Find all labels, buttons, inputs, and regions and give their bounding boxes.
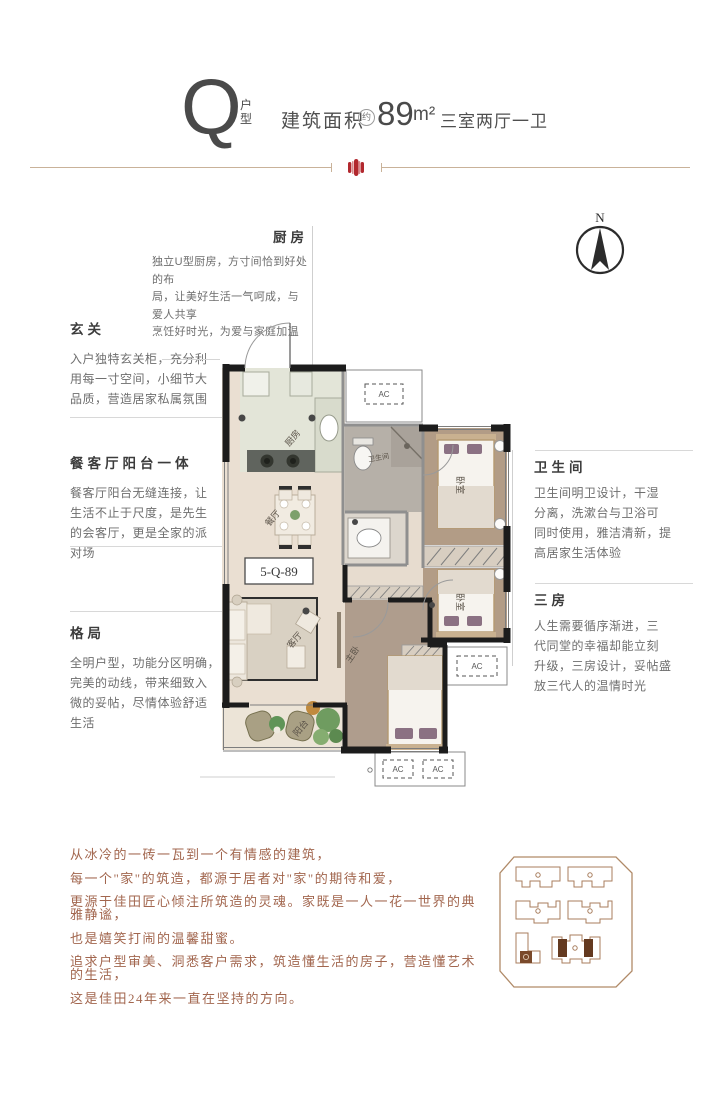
manifesto-line: 也是嬉笑打闹的温馨甜蜜。 — [70, 932, 490, 945]
divider-ornament-icon — [345, 157, 367, 178]
manifesto-line: 每一个"家"的筑造，都源于居者对"家"的期待和爱， — [70, 872, 490, 885]
divider-three-rooms — [535, 583, 693, 584]
unit-code-text: 5-Q-89 — [260, 564, 298, 579]
divider-tick-right — [381, 163, 382, 172]
annotation-three-rooms-text: 人生需要循序渐进，三 代同堂的幸福却能立刻 升级，三房设计，妥帖盛 放三代人的温… — [534, 616, 696, 696]
manifesto: 从冰冷的一砖一瓦到一个有情感的建筑， 每一个"家"的筑造，都源于居者对"家"的期… — [70, 848, 490, 1015]
compass-north-label: N — [595, 210, 605, 225]
area-value: 89 — [377, 95, 414, 133]
divider-tick-left — [331, 163, 332, 172]
annotation-three-rooms: 三房 人生需要循序渐进，三 代同堂的幸福却能立刻 升级，三房设计，妥帖盛 放三代… — [534, 589, 696, 696]
annotation-bathroom: 卫生间 卫生间明卫设计，干湿 分离，洗漱台与卫浴可 同时使用，雅洁清新，提 高居… — [534, 456, 696, 563]
divider-line-right — [381, 167, 690, 168]
plan-type-char-top: 户 — [240, 98, 253, 112]
ac-platform-top: AC — [346, 370, 422, 422]
rooms-summary: 三室两厅一卫 — [440, 107, 548, 132]
ac-label-right: AC — [471, 662, 482, 671]
ac-label-bottom-1: AC — [392, 765, 403, 774]
manifesto-line: 追求户型审美、洞悉客户需求，筑造懂生活的房子，营造懂艺术的生活， — [70, 955, 490, 981]
room-label-bedroom2: 卧室 — [455, 593, 466, 611]
approx-circle-badge: 约 — [358, 109, 375, 126]
manifesto-line: 更源于佳田匠心倾注所筑造的灵魂。家既是一人一花一世界的典雅静谧， — [70, 895, 490, 921]
floor-plan: AC AC AC AC — [195, 300, 525, 800]
manifesto-line: 从冰冷的一砖一瓦到一个有情感的建筑， — [70, 848, 490, 861]
divider-bathroom — [535, 450, 693, 451]
area-label: 建筑面积 — [281, 106, 365, 133]
annotation-bathroom-title: 卫生间 — [534, 456, 696, 476]
area-unit: m² — [413, 104, 435, 126]
compass-icon: N — [570, 208, 630, 280]
plan-letter: Q — [181, 68, 242, 146]
plan-type-char-bottom: 型 — [240, 112, 253, 126]
ac-label-top: AC — [378, 390, 389, 399]
annotation-three-rooms-title: 三房 — [534, 589, 696, 609]
site-plan — [498, 853, 638, 993]
ac-label-bottom-2: AC — [432, 765, 443, 774]
annotation-bathroom-text: 卫生间明卫设计，干湿 分离，洗漱台与卫浴可 同时使用，雅洁清新，提 高居家生活体… — [534, 483, 696, 563]
master-bed — [386, 656, 444, 750]
compass: N — [570, 208, 630, 280]
plan-type-label: 户 型 — [240, 98, 253, 126]
ac-platform-bottom: AC AC — [368, 752, 465, 786]
ac-platform-right: AC — [447, 647, 507, 685]
unit-code-box: 5-Q-89 — [245, 558, 313, 584]
annotation-kitchen-title: 厨房 — [152, 226, 308, 246]
room-label-bedroom1: 卧室 — [455, 476, 466, 494]
manifesto-line: 这是佳田24年来一直在坚持的方向。 — [70, 992, 490, 1005]
floorplan-flyer-page: Q 户 型 建筑面积 约 89 m² 三室两厅一卫 N 厨房 独立U型厨房，方寸… — [0, 0, 720, 1097]
divider-line-left — [30, 167, 331, 168]
